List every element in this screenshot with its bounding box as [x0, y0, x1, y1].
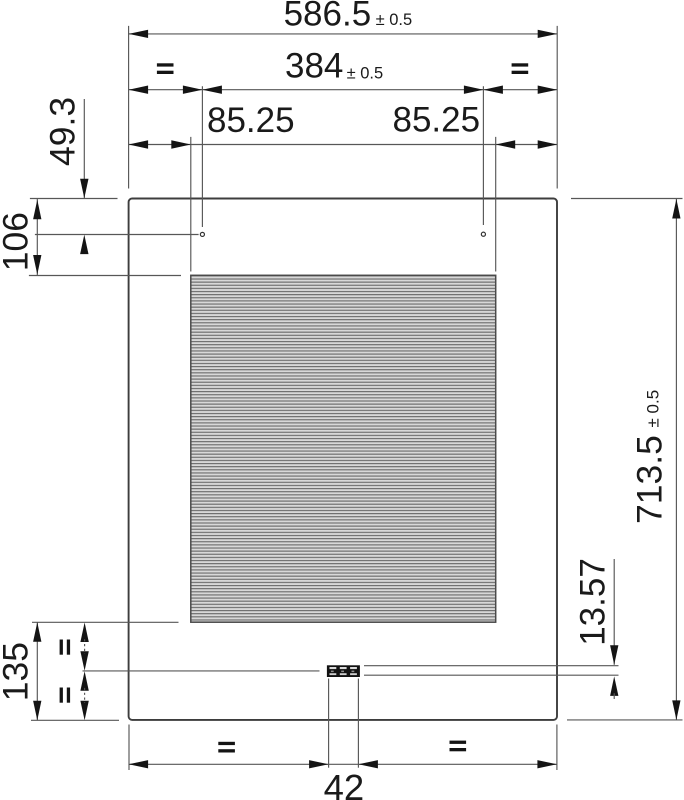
svg-text:85.25: 85.25	[393, 101, 481, 140]
svg-text:384: 384	[285, 47, 343, 86]
svg-text:106: 106	[0, 212, 35, 271]
svg-text:713.5: 713.5	[630, 435, 670, 524]
svg-text:49.3: 49.3	[42, 97, 82, 166]
svg-text:13.57: 13.57	[573, 558, 612, 646]
svg-text:± 0.5: ± 0.5	[347, 65, 384, 83]
svg-text:85.25: 85.25	[207, 101, 295, 140]
svg-text:± 0.5: ± 0.5	[644, 390, 663, 428]
svg-text:135: 135	[0, 642, 35, 701]
svg-text:± 0.5: ± 0.5	[376, 11, 413, 29]
svg-text:42: 42	[324, 767, 365, 800]
svg-text:586.5: 586.5	[284, 0, 372, 34]
